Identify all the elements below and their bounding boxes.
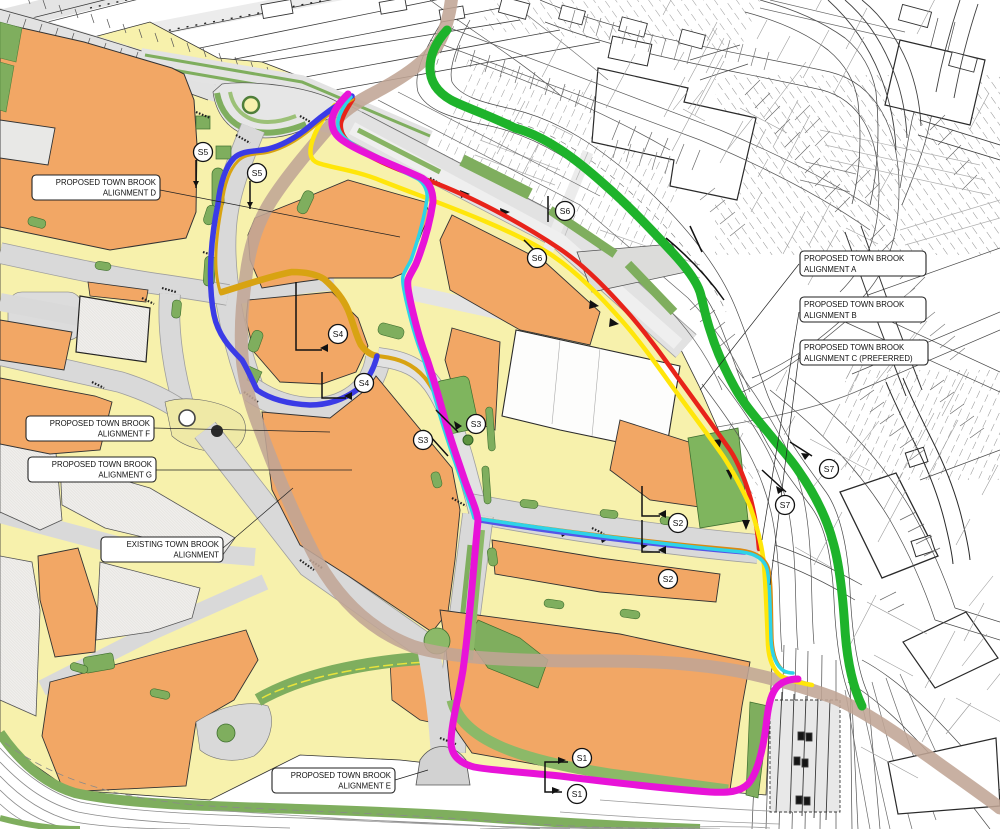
svg-text:S5: S5 <box>252 168 263 178</box>
svg-text:S4: S4 <box>333 329 344 339</box>
svg-text:PROPOSED TOWN BROOK: PROPOSED TOWN BROOK <box>804 254 905 263</box>
svg-text:S2: S2 <box>663 574 674 584</box>
svg-text:ALIGNMENT G: ALIGNMENT G <box>98 471 152 480</box>
svg-text:ALIGNMENT A: ALIGNMENT A <box>804 265 857 274</box>
svg-text:S6: S6 <box>560 206 571 216</box>
svg-text:ALIGNMENT B: ALIGNMENT B <box>804 311 857 320</box>
svg-text:S6: S6 <box>532 253 543 263</box>
svg-text:ALIGNMENT C (PREFERRED): ALIGNMENT C (PREFERRED) <box>804 354 913 363</box>
svg-text:S4: S4 <box>359 378 370 388</box>
svg-text:ALIGNMENT: ALIGNMENT <box>174 551 220 560</box>
svg-text:S1: S1 <box>572 789 583 799</box>
svg-text:S3: S3 <box>418 435 429 445</box>
svg-text:ALIGNMENT F: ALIGNMENT F <box>98 430 151 439</box>
svg-text:S1: S1 <box>577 753 588 763</box>
svg-text:S7: S7 <box>780 500 791 510</box>
svg-text:ALIGNMENT E: ALIGNMENT E <box>338 782 391 791</box>
svg-text:ALIGNMENT D: ALIGNMENT D <box>103 189 157 198</box>
svg-text:S3: S3 <box>471 419 482 429</box>
svg-text:PROPOSED TOWN BROOK: PROPOSED TOWN BROOK <box>50 419 151 428</box>
svg-text:PROPOSED TOWN BROOK: PROPOSED TOWN BROOK <box>804 300 905 309</box>
svg-text:PROPOSED TOWN BROOK: PROPOSED TOWN BROOK <box>291 771 392 780</box>
svg-text:S7: S7 <box>824 464 835 474</box>
svg-text:S5: S5 <box>198 147 209 157</box>
svg-text:EXISTING TOWN BROOK: EXISTING TOWN BROOK <box>127 540 220 549</box>
svg-text:S2: S2 <box>673 518 684 528</box>
svg-text:PROPOSED TOWN BROOK: PROPOSED TOWN BROOK <box>52 460 153 469</box>
svg-text:PROPOSED TOWN BROOK: PROPOSED TOWN BROOK <box>56 178 157 187</box>
svg-text:PROPOSED TOWN BROOK: PROPOSED TOWN BROOK <box>804 343 905 352</box>
